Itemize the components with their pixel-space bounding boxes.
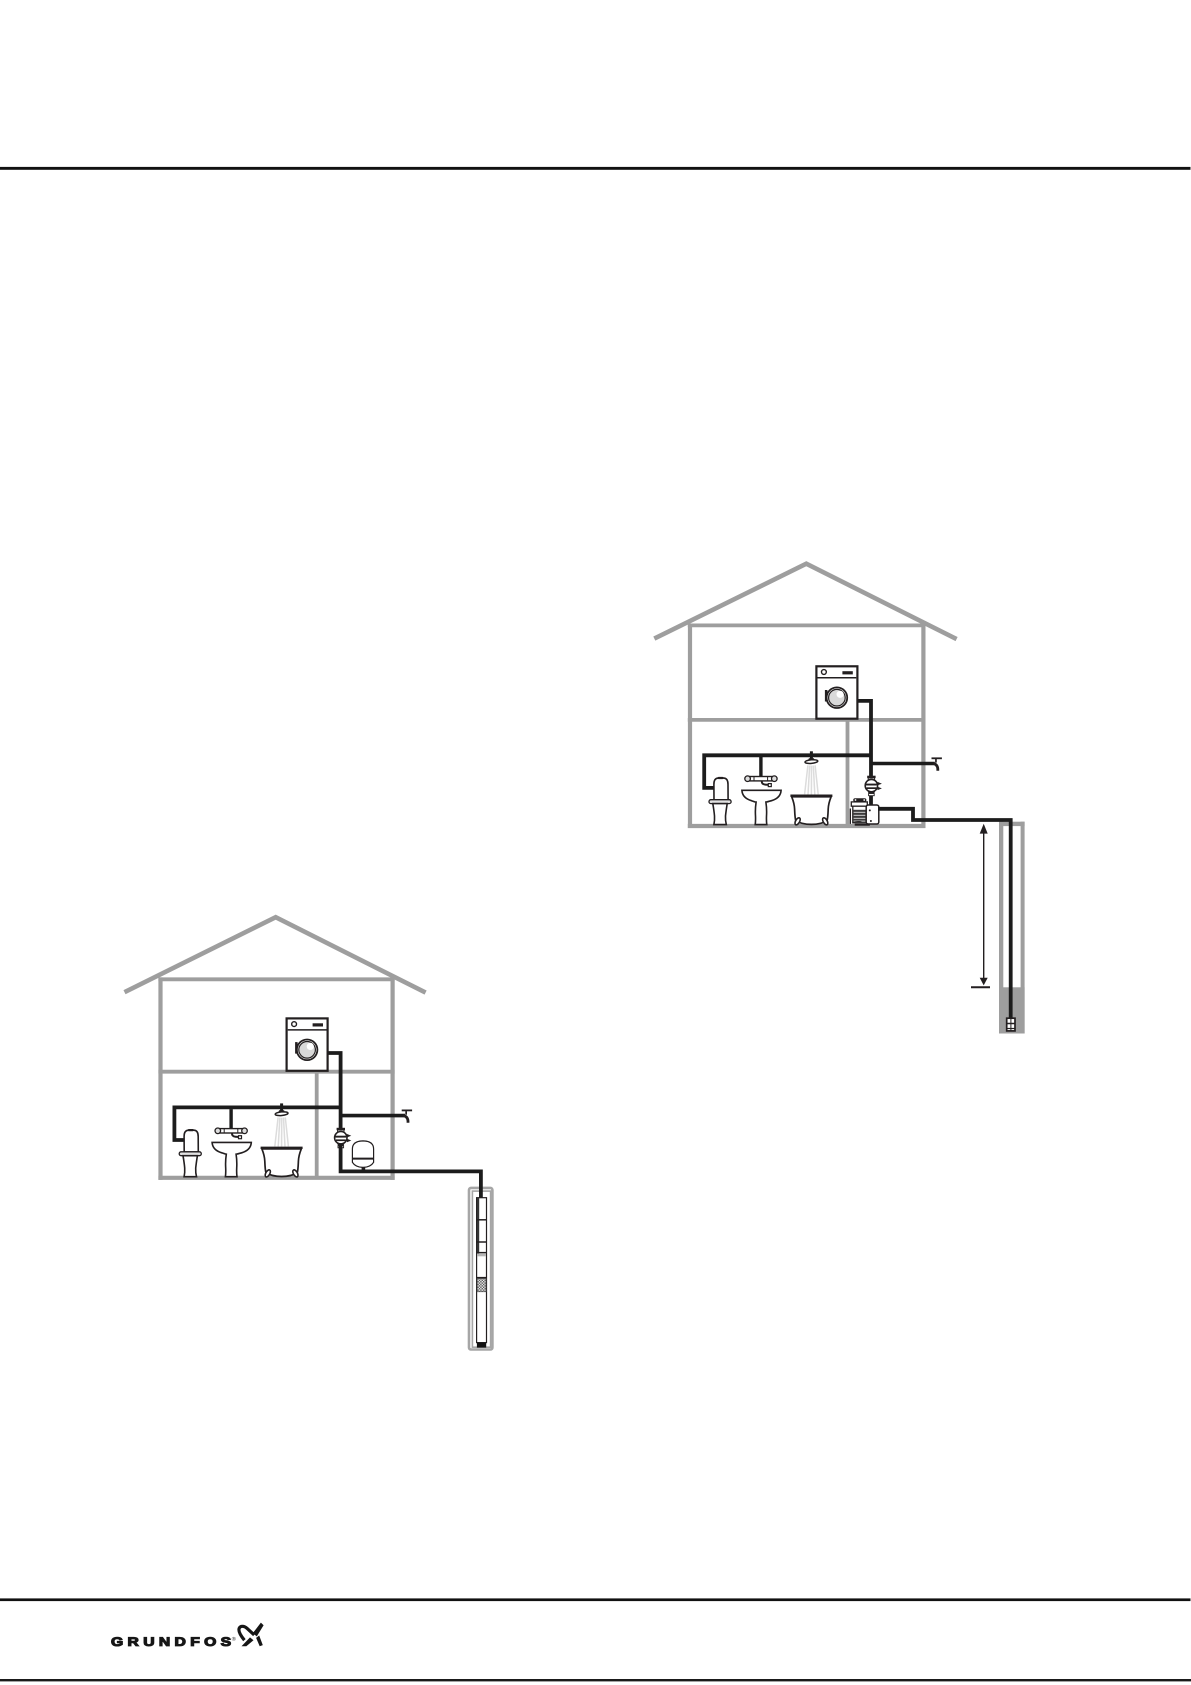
svg-text:GRUNDFOS: GRUNDFOS xyxy=(111,1635,236,1649)
svg-text:®: ® xyxy=(232,1636,237,1643)
